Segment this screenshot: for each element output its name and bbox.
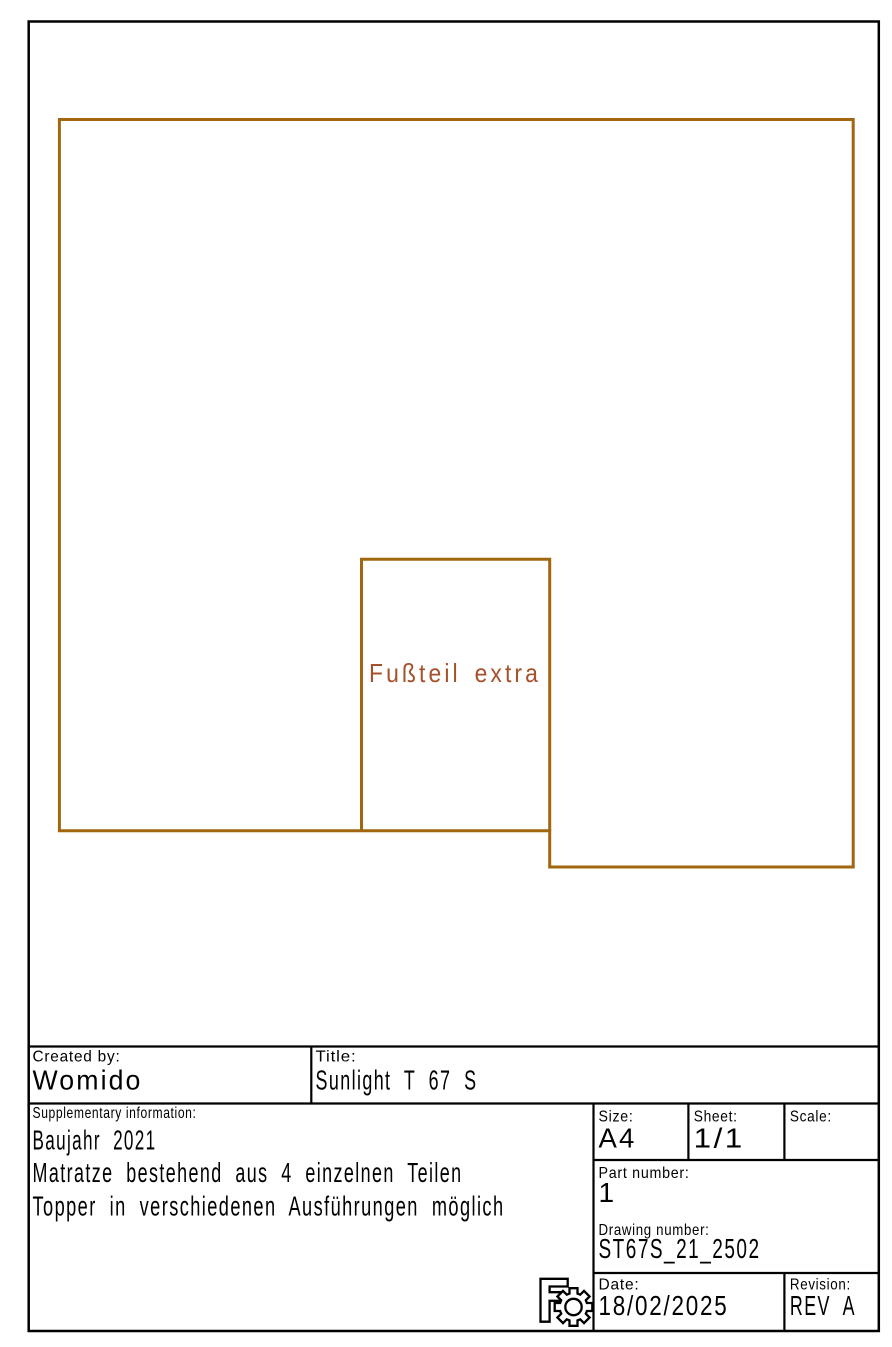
svg-text:18/02/2025: 18/02/2025 <box>599 1290 729 1321</box>
svg-text:A4: A4 <box>599 1123 637 1154</box>
svg-text:Womido: Womido <box>33 1065 143 1096</box>
svg-text:Baujahr 2021: Baujahr 2021 <box>33 1125 157 1156</box>
svg-text:Matratze bestehend aus 4 einze: Matratze bestehend aus 4 einzelnen Teile… <box>33 1157 463 1188</box>
svg-text:Title:: Title: <box>316 1048 357 1065</box>
svg-text:1/1: 1/1 <box>694 1123 745 1154</box>
svg-text:1: 1 <box>599 1177 617 1208</box>
svg-text:Fußteil extra: Fußteil extra <box>369 658 541 688</box>
svg-text:Supplementary information:: Supplementary information: <box>33 1105 197 1122</box>
svg-text:ST67S_21_2502: ST67S_21_2502 <box>599 1233 761 1264</box>
svg-text:Scale:: Scale: <box>790 1108 832 1125</box>
svg-text:Created by:: Created by: <box>33 1048 121 1065</box>
svg-text:Sunlight T 67 S: Sunlight T 67 S <box>316 1065 478 1096</box>
svg-text:Topper in verschiedenen Ausfüh: Topper in verschiedenen Ausführungen mög… <box>33 1191 505 1222</box>
svg-text:REV A: REV A <box>790 1290 856 1321</box>
